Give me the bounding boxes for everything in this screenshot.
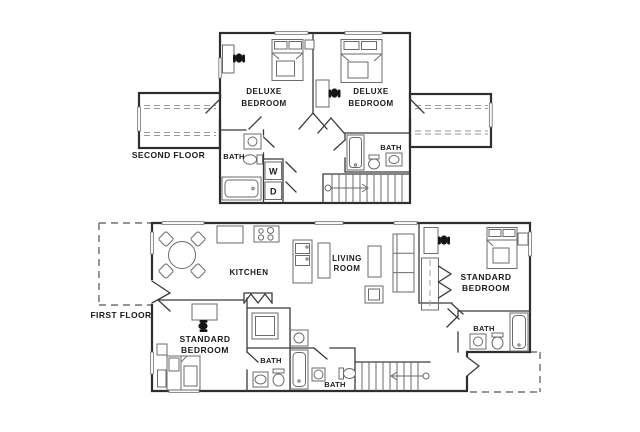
floor-plan-page: DELUXE BEDROOM DELUXE BEDROOM [0, 0, 640, 432]
toilet-bowl [244, 155, 257, 165]
desk [316, 80, 329, 107]
room-label: DELUXE [353, 87, 389, 96]
kitchen-counter [217, 226, 243, 243]
stove [254, 226, 279, 242]
room-label: BEDROOM [462, 283, 510, 293]
bath-label: BATH [324, 380, 345, 389]
toilet-tank [492, 333, 503, 337]
first-floor-staircase [362, 362, 429, 391]
nightstand [518, 233, 528, 245]
dining-chair [190, 231, 206, 247]
toilet-tank [273, 369, 284, 373]
living-room-label: ROOM [334, 264, 361, 273]
standard-bedroom-right: STANDARD BEDROOM [422, 228, 529, 311]
first-floor-label: FIRST FLOOR [90, 310, 151, 320]
toilet-bowl [492, 337, 503, 349]
room-label: STANDARD [460, 272, 511, 282]
kitchen-sink-counter [293, 240, 312, 283]
first-floor-patio-right [470, 352, 540, 392]
desk [223, 45, 235, 73]
couch [393, 234, 414, 292]
second-floor-left-wing [138, 93, 223, 148]
window-top-living [315, 222, 343, 225]
closet-doors [439, 266, 452, 298]
toilet-bowl [344, 369, 356, 379]
first-floor-patio-left [99, 223, 152, 305]
desk-chair-icon [198, 320, 207, 332]
sink-counter [470, 334, 486, 349]
bath-label: BATH [380, 143, 401, 152]
left-wing-walls [139, 93, 220, 148]
right-wing-window [489, 103, 492, 127]
right-wing-dashed-lines [415, 106, 488, 135]
left-wing-window [138, 107, 141, 131]
shower-inner [256, 317, 275, 336]
washer-label: W [269, 167, 278, 177]
stair-start-marker [423, 373, 429, 379]
nightstand [157, 344, 167, 355]
dining-chair [190, 263, 206, 279]
desk-chair-icon [329, 88, 341, 97]
right-wing-walls [410, 94, 491, 147]
first-floor-bath-center: BATH [291, 330, 356, 389]
window-top-dining [162, 222, 204, 225]
toilet-bowl [369, 159, 380, 169]
kitchen-label: KITCHEN [229, 268, 268, 277]
closet [422, 258, 452, 310]
dining-chair [158, 263, 174, 279]
first-floor-bath-left: BATH [252, 313, 284, 387]
dining-set [158, 231, 206, 279]
window-left-bedroom [151, 352, 154, 374]
room-label: BEDROOM [348, 99, 393, 108]
toilet-tank [339, 368, 344, 379]
tv-stand [365, 286, 383, 303]
window-right-bedroom [529, 232, 532, 256]
second-floor-right-wing [408, 94, 492, 147]
sink-counter [244, 134, 261, 149]
kitchen-island [318, 243, 330, 278]
stair-direction-arrow [331, 184, 368, 192]
room-label: DELUXE [246, 87, 282, 96]
patio-door-gap [465, 357, 469, 376]
desk-chair-icon [438, 235, 450, 244]
bath-label: BATH [260, 356, 281, 365]
second-floor-label: SECOND FLOOR [132, 150, 205, 160]
second-floor-bath-left: BATH [222, 134, 263, 200]
stair-start-marker [325, 185, 331, 191]
room-label: STANDARD [179, 334, 230, 344]
desk [192, 304, 217, 320]
sink-counter [386, 153, 402, 166]
room-label: BEDROOM [241, 99, 286, 108]
entry-door-gap [150, 280, 154, 304]
dryer-label: D [270, 187, 277, 197]
window-top-left-bedroom [275, 32, 308, 35]
bath-label: BATH [473, 324, 494, 333]
toilet-tank [257, 155, 263, 164]
window-top-right-bedroom [345, 32, 382, 35]
first-floor-bath-right: BATH [470, 313, 528, 351]
coffee-table [368, 246, 381, 277]
deluxe-bedroom-right: DELUXE BEDROOM [316, 40, 394, 109]
second-floor-staircase [325, 174, 402, 203]
desk [424, 228, 438, 254]
dining-table [169, 242, 196, 269]
toilet-tank [369, 155, 379, 159]
kitchen: KITCHEN [158, 226, 330, 283]
room-label: BEDROOM [181, 345, 229, 355]
living-room: LIVING ROOM [332, 234, 414, 303]
left-wing-dashed-lines [144, 106, 216, 136]
sink-counter [291, 330, 309, 346]
living-room-label: LIVING [332, 254, 362, 263]
window-left-bedroom-wall [219, 58, 222, 78]
window-left-kitchen [151, 232, 154, 254]
second-floor-bath-right: BATH [347, 135, 402, 170]
toilet-bowl [273, 374, 284, 386]
floor-plan-drawing: DELUXE BEDROOM DELUXE BEDROOM [0, 0, 640, 432]
bath-label: BATH [223, 152, 244, 161]
first-floor-plan: KITCHEN LIVING ROOM [90, 222, 540, 393]
washer-dryer-closet: W D [265, 162, 282, 200]
side-table [158, 370, 167, 387]
dining-chair [158, 231, 174, 247]
deluxe-bedroom-left: DELUXE BEDROOM [223, 40, 315, 109]
standard-bedroom-left: STANDARD BEDROOM [157, 304, 231, 390]
second-floor-plan: DELUXE BEDROOM DELUXE BEDROOM [132, 32, 492, 203]
nightstand [305, 40, 314, 49]
window-top-couch [394, 222, 417, 225]
desk-chair-icon [233, 53, 245, 62]
